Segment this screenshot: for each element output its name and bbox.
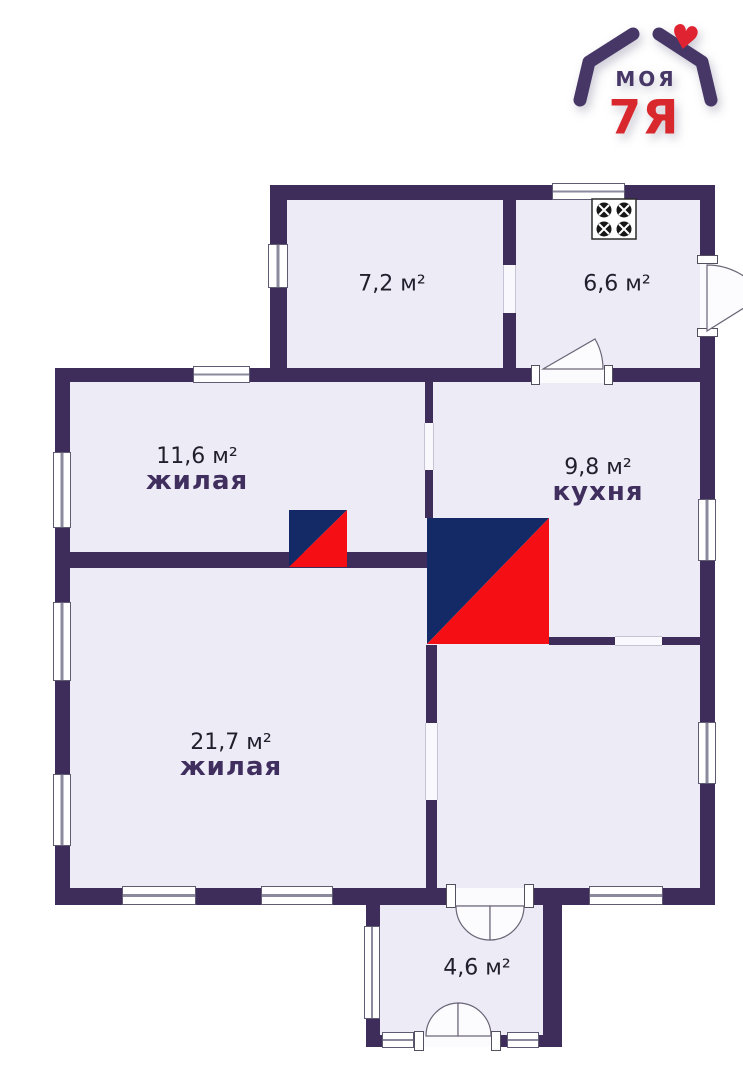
- door-jamb: [604, 365, 613, 385]
- door-jamb: [414, 1031, 424, 1051]
- logo-text-moya: МОЯ: [615, 67, 676, 91]
- room-11-6-label: 11,6 м² жилая: [146, 445, 248, 495]
- opening-kitchen-to-right-room: [615, 636, 662, 646]
- room-area: 4,6 м²: [443, 955, 510, 980]
- room-21-7-label: 21,7 м² жилая: [180, 731, 282, 781]
- door-jamb: [531, 365, 540, 385]
- floor-plan-page: 7,2 м² 6,6 м² 11,6 м² жилая 9,8 м² кухня…: [0, 0, 743, 1080]
- door-jamb: [446, 884, 456, 908]
- room-6-6-label: 6,6 м²: [583, 272, 650, 295]
- window: [698, 499, 716, 561]
- room-area: 6,6 м²: [583, 271, 650, 296]
- room-area: 7,2 м²: [358, 271, 425, 296]
- window: [122, 886, 196, 905]
- window: [364, 926, 380, 1019]
- window: [53, 602, 71, 681]
- window: [698, 722, 716, 784]
- room-name: кухня: [552, 479, 643, 506]
- furnace-icon-small: [289, 510, 347, 567]
- window: [552, 183, 625, 200]
- door-jamb: [491, 1031, 501, 1051]
- window: [193, 366, 250, 383]
- window: [261, 886, 333, 905]
- window: [507, 1032, 539, 1048]
- window: [53, 452, 71, 528]
- door-gap-exterior-right: [700, 263, 715, 329]
- window: [53, 774, 71, 846]
- door-jamb: [697, 328, 718, 337]
- opening-7-2-to-6-6: [503, 265, 516, 313]
- opening-21-7-to-right-room: [425, 723, 438, 800]
- door-gap-hallway-exterior: [424, 1035, 491, 1047]
- room-7-2-label: 7,2 м²: [358, 272, 425, 295]
- logo-text-7ya: 7Я: [609, 91, 680, 146]
- kitchen-label: 9,8 м² кухня: [552, 456, 643, 506]
- window: [589, 886, 663, 905]
- wall-between-11-6-and-21-7: [70, 552, 433, 568]
- window: [382, 1032, 414, 1048]
- door-gap-right-room-to-hallway: [456, 888, 524, 905]
- agency-logo: ♥ МОЯ 7Я: [558, 10, 743, 160]
- hallway-label: 4,6 м²: [443, 956, 510, 979]
- window: [268, 244, 288, 288]
- door-jamb: [697, 255, 718, 264]
- door-gap-6-6-to-kitchen: [539, 368, 605, 383]
- room-name: жилая: [180, 754, 282, 781]
- furnace-icon: [427, 518, 549, 644]
- door-jamb: [524, 884, 534, 908]
- opening-11-6-to-kitchen: [424, 423, 434, 470]
- room-name: жилая: [146, 468, 248, 495]
